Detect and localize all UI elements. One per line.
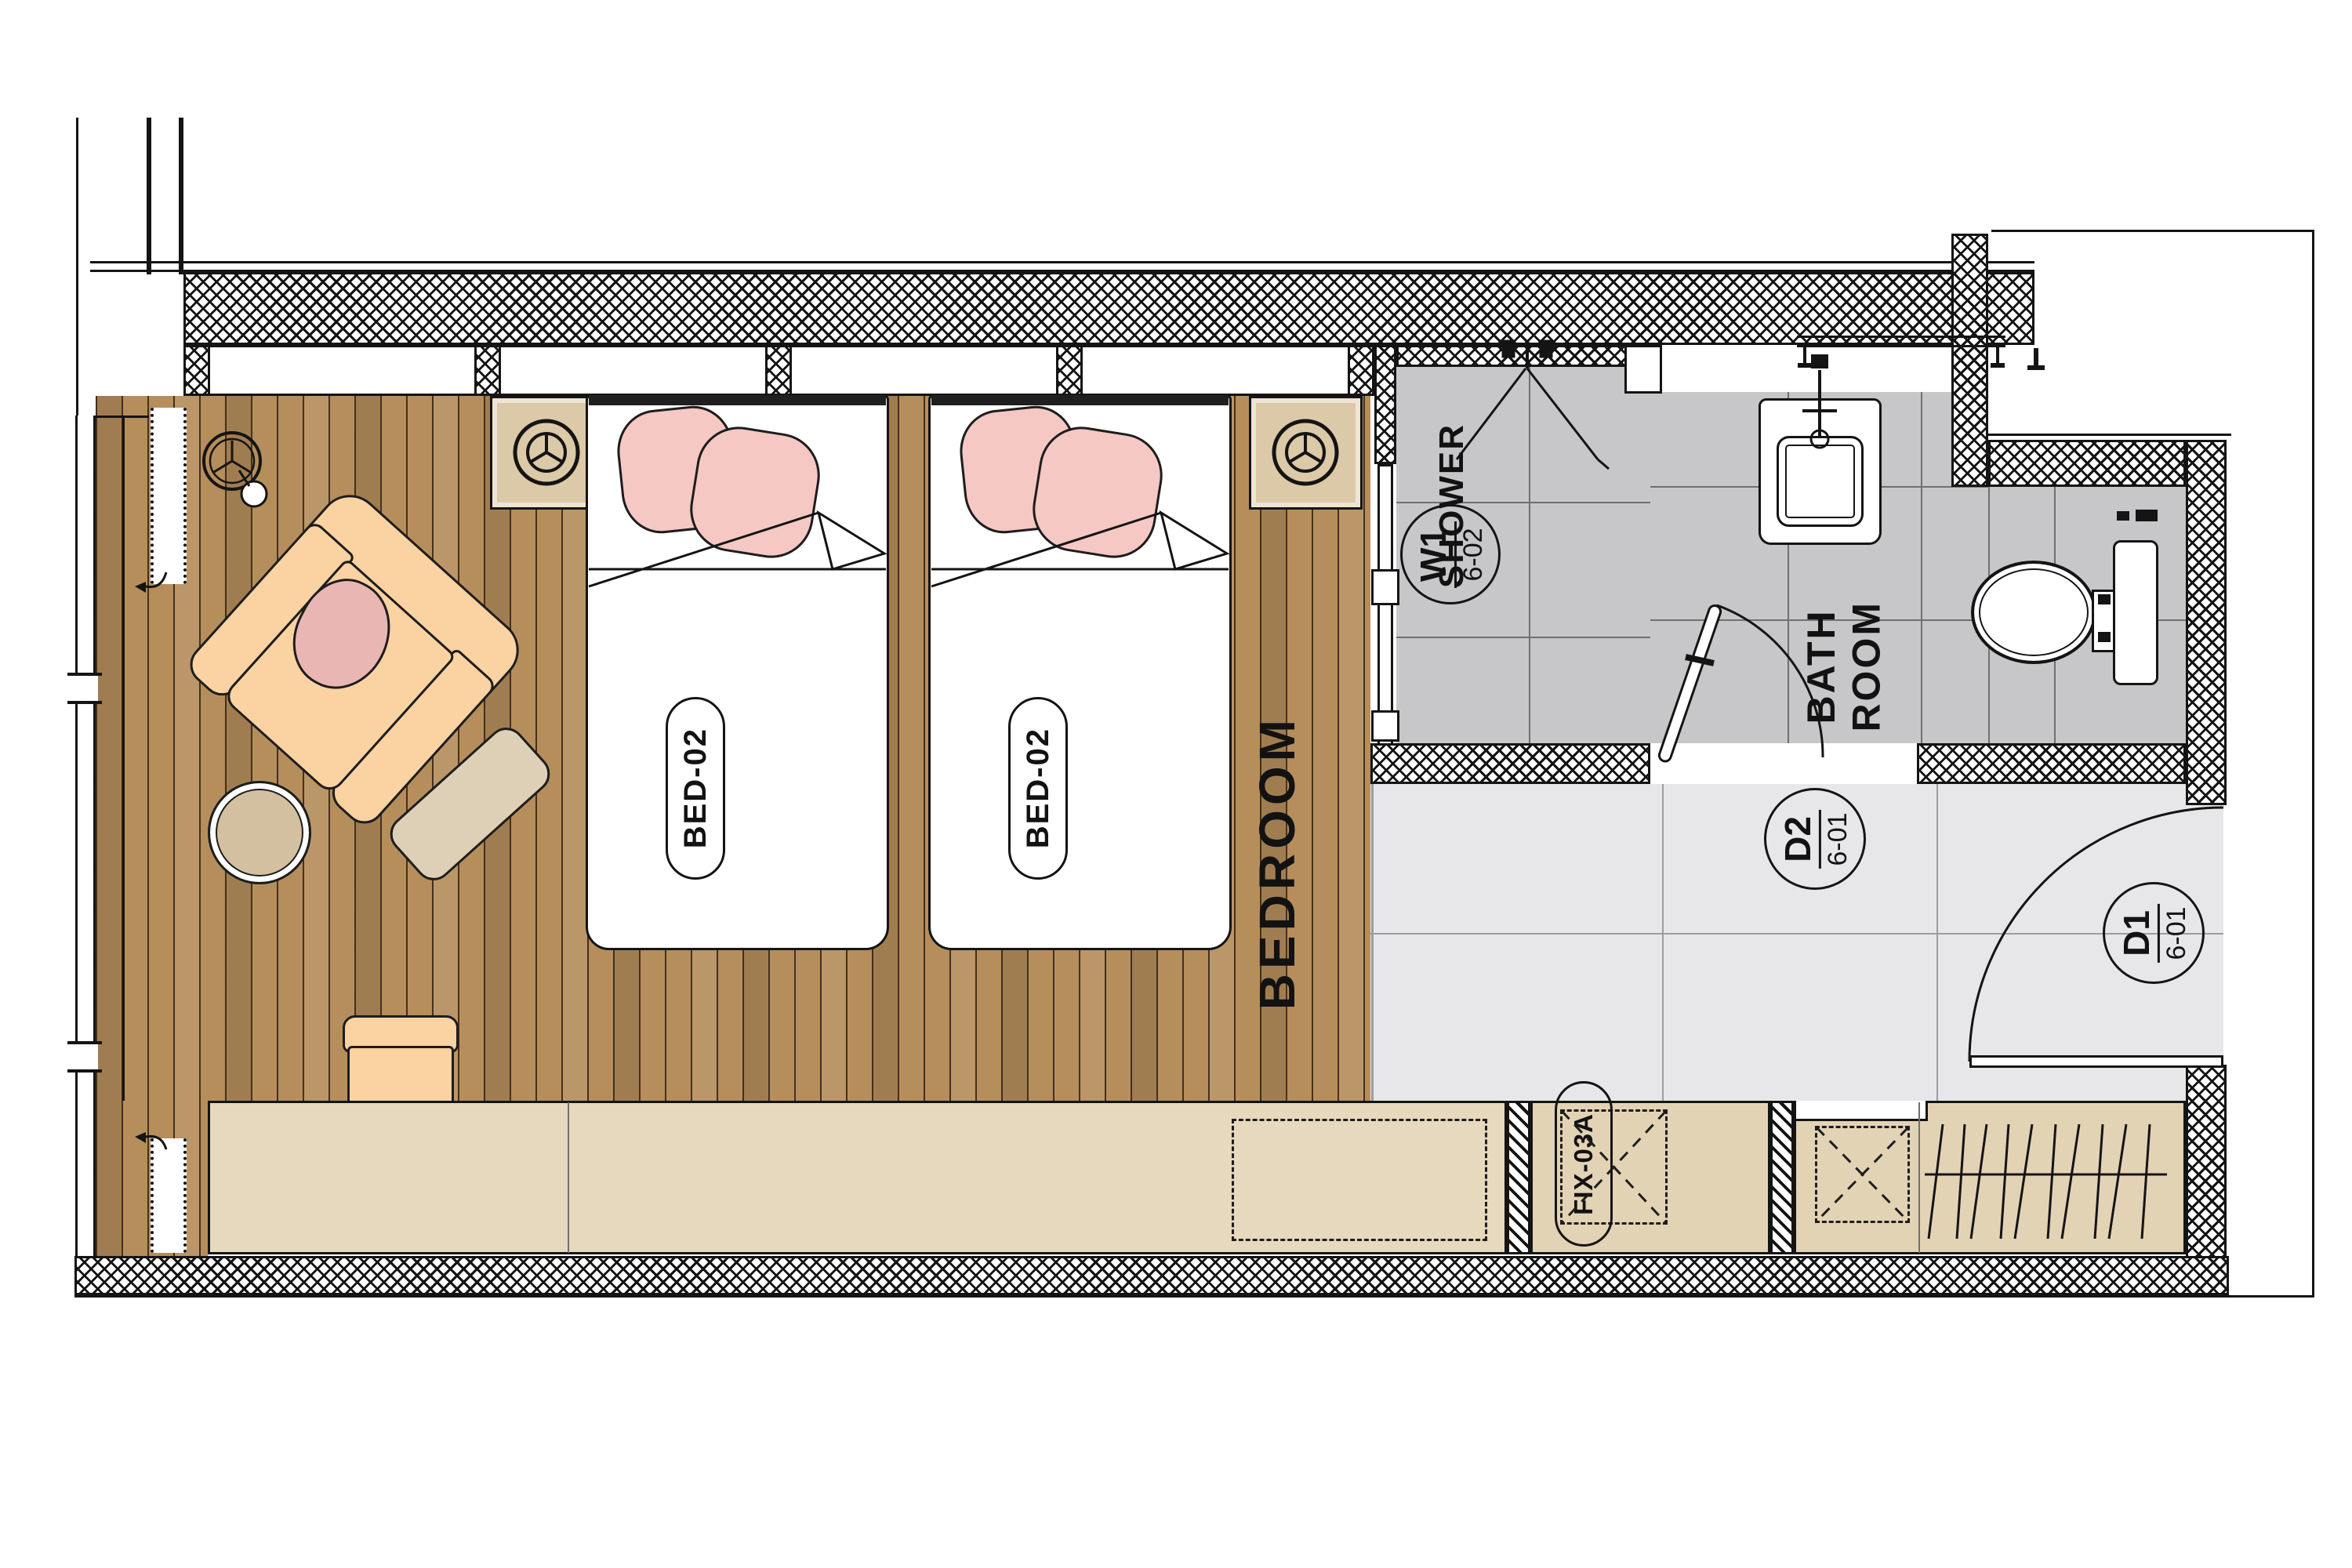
- bathroom-label-wrap: BATH ROOM: [1797, 572, 1891, 760]
- bathroom-door-handle: [1686, 657, 1714, 663]
- toilet-hinge: [2098, 632, 2111, 642]
- nightstand-speaker-icon: [515, 421, 578, 484]
- ceiling-fan-icon: [204, 433, 267, 506]
- shower-head-icon: [1457, 340, 1609, 469]
- dashed-x: [1562, 1111, 1908, 1223]
- shower-label-wrap: SHOWER: [1432, 400, 1472, 612]
- nightstand-speaker-icon: [1274, 421, 1337, 484]
- bathroom-label: BATH ROOM: [1799, 601, 1889, 732]
- door-tag-code: D1: [2118, 904, 2160, 963]
- door-tag-code: D2: [1780, 810, 1821, 869]
- bedroom-label-wrap: BEDROOM: [1249, 666, 1305, 1058]
- door-tag-sheet: 6-01: [2160, 906, 2190, 960]
- closet-hangers: [1925, 1124, 2167, 1239]
- toilet-hinge: [2098, 594, 2111, 604]
- sink-faucet-icon: [1802, 354, 1837, 448]
- linework-overlay: [0, 0, 2352, 1568]
- curtain-arrow: [135, 572, 166, 1149]
- door-tag-d2: D2 6-01: [1764, 788, 1866, 890]
- bedroom-label: BEDROOM: [1248, 715, 1306, 1010]
- floor-plan: BED-02 BED-02 FIX-03A: [0, 0, 2352, 1568]
- shower-label: SHOWER: [1432, 423, 1472, 588]
- door-tag-sheet: 6-01: [1821, 812, 1851, 866]
- door-tag-d1: D1 6-01: [2103, 882, 2205, 984]
